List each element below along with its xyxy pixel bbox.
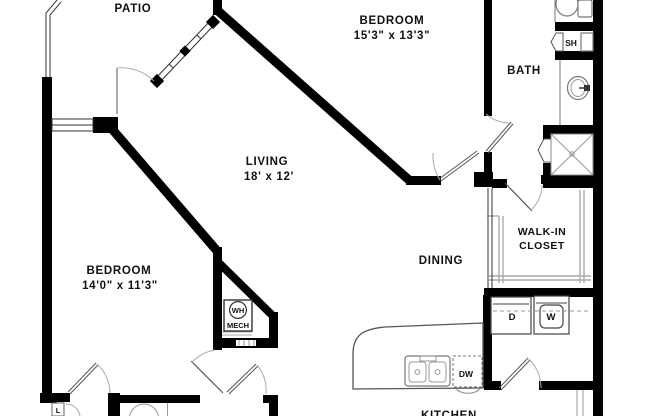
toilet-2 (129, 403, 168, 416)
bedroom-1-label: BEDROOM (360, 15, 425, 27)
dining-label: DINING (419, 255, 463, 267)
patio-glass-door (150, 15, 220, 88)
bedroom-2-label: BEDROOM (87, 265, 152, 277)
walk-in-closet-label-line2: CLOSET (519, 240, 565, 252)
mechanical-label: MECH (227, 321, 249, 330)
dryer-label: D (509, 312, 516, 323)
floorplan-svg: PATIO BEDROOM 15'3" x 13'3" BATH SH LIVI… (0, 0, 652, 416)
labels: PATIO BEDROOM 15'3" x 13'3" BATH SH LIVI… (56, 3, 577, 416)
patio-label: PATIO (115, 3, 152, 15)
patio-railing (46, 0, 61, 77)
walk-in-closet-label-line1: WALK-IN (518, 226, 567, 238)
kitchen-label: KITCHEN (421, 410, 477, 416)
walk-in-rods (487, 188, 591, 288)
shelf-label: SH (565, 38, 577, 48)
bath-label: BATH (507, 65, 541, 77)
bedroom-2-dimensions: 14'0" x 11'3" (82, 280, 158, 292)
entry-opening-lines (577, 390, 583, 416)
dishwasher-label: DW (459, 369, 474, 379)
walls (40, 0, 603, 416)
bath-sink (560, 60, 590, 125)
bedroom-1-dimensions: 15'3" x 13'3" (354, 30, 431, 42)
living-dimensions: 18' x 12' (244, 171, 294, 183)
floorplan-page: PATIO BEDROOM 15'3" x 13'3" BATH SH LIVI… (0, 0, 652, 416)
bath-toilet (555, 0, 592, 22)
water-heater-label: WH (232, 306, 245, 315)
linen-label: L (56, 406, 61, 415)
living-label: LIVING (246, 156, 288, 168)
shower (551, 134, 593, 175)
washer-label: W (547, 312, 556, 323)
kitchen-sink (405, 356, 450, 386)
shelf-box (581, 33, 593, 51)
patio-window (52, 119, 93, 131)
